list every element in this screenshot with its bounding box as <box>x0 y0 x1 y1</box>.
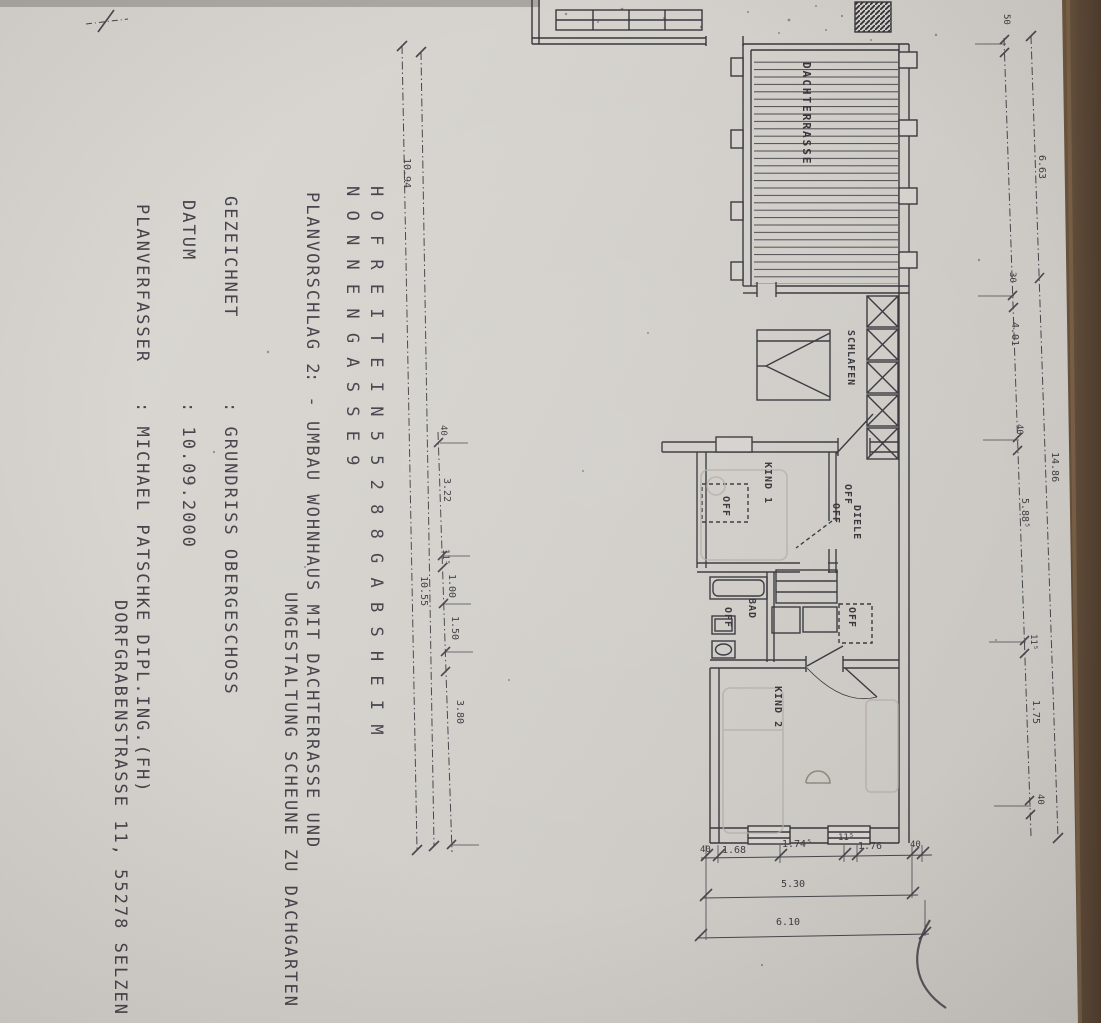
kind2-door-swing-arc <box>807 668 877 699</box>
titleblock-planvorschlag-label: PLANVORSCHLAG 2 <box>302 192 322 376</box>
pen-mark-curve <box>917 920 946 1008</box>
room-label-diele: DIELE <box>851 505 862 540</box>
room-label-dachterrasse: DACHTERRASSE <box>800 62 813 165</box>
titleblock-datum-value: : 10.09.2000 <box>178 402 198 549</box>
titleblock-planverfasser-value1: : MICHAEL PATSCHKE DIPL.ING.(FH) <box>132 402 152 794</box>
dimension-line-bottom-width <box>700 887 919 901</box>
dimension-chain-right <box>975 35 1035 836</box>
titleblock-planvorschlag-value1: : - UMBAU WOHNHAUS MIT DACHTERRASSE UND <box>302 372 322 849</box>
dim-label-left-chain-2: 11⁵ <box>440 549 450 565</box>
dim-label-right-chain-4: 5.88⁵ <box>1019 498 1030 528</box>
dim-label-bottom-chain-2: 1.74⁵ <box>782 839 812 850</box>
bad-walls <box>767 572 774 662</box>
dim-label-right-chain-5: 11⁵ <box>1028 634 1038 650</box>
off-label-diele-upper: OFF <box>842 484 853 505</box>
terrace-schlafen-wall <box>743 282 909 297</box>
pencil-arc-sketch <box>806 771 830 783</box>
dim-label-right-chain-7: 40 <box>1035 794 1045 805</box>
titleblock-planvorschlag-value2: UMGESTALTUNG SCHEUNE ZU DACHGARTEN <box>280 592 300 1008</box>
dim-label-left-chain-0: 40 <box>438 425 448 436</box>
staircase-symbol <box>772 570 837 633</box>
dim-label-left-chain-4: 1.50 <box>449 616 460 640</box>
chimney-hatched <box>855 2 891 32</box>
kind2-door-leaf <box>845 668 877 697</box>
dim-label-right-chain-6: 1.75 <box>1030 700 1041 724</box>
dim-label-left-total: 10.94 <box>401 158 412 188</box>
dim-label-right-chain-0: 50 <box>1001 14 1011 25</box>
room-label-bad: BAD <box>746 598 757 619</box>
dimension-line-bottom-total <box>695 927 931 941</box>
titleblock-gezeichnet-label: GEZEICHNET <box>220 196 240 318</box>
dim-label-left-chain-3: 1.00 <box>446 574 457 598</box>
kind2-walls <box>710 668 899 843</box>
bed-symbol <box>757 330 830 400</box>
dim-label-bottom-chain-3: 11⁵ <box>838 833 854 843</box>
dim-label-right-chain-2: 4.01 <box>1009 322 1020 346</box>
adjoining-structure-walls <box>532 0 743 46</box>
titleblock-gezeichnet-value: : GRUNDRISS OBERGESCHOSS <box>220 402 240 696</box>
off-label-bad: OFF <box>722 607 733 628</box>
dim-label-left-chain-5: 3.80 <box>454 700 465 724</box>
floor-plan-drawing <box>0 0 1101 1023</box>
off-label-diele-lower: OFF <box>846 607 857 628</box>
wardrobe-symbol <box>867 296 898 459</box>
dim-label-bottom-chain-1: 1.68 <box>722 845 746 856</box>
bottom-extension-lines <box>706 845 925 940</box>
edge-dimension-tick <box>86 10 128 32</box>
dim-label-right-chain-3: 40 <box>1014 424 1024 435</box>
diele-door-leaf <box>807 646 843 666</box>
dim-label-left-partial: 10.55 <box>418 576 429 606</box>
bathtub-symbol <box>710 577 767 599</box>
dim-label-bottom-total: 6.10 <box>776 917 800 928</box>
titleblock-project-line1: H O F R E I T E I N 5 5 2 8 8 G A B S H … <box>366 186 386 737</box>
titleblock-planverfasser-label: PLANVERFASSER <box>132 204 152 363</box>
dim-label-bottom-chain-5: 40 <box>910 840 921 850</box>
room-label-schlafen: SCHLAFEN <box>845 330 856 386</box>
kind2-top-wall <box>710 656 899 672</box>
kind1-door-swing-dashed <box>796 521 832 548</box>
dim-label-right-span-top: 6.63 <box>1036 155 1047 179</box>
titleblock-planverfasser-value2: DORFGRABENSTRASSE 11, 55278 SELZEN <box>110 600 130 1016</box>
sink-symbol <box>712 641 735 658</box>
dim-label-bottom-chain-4: 1.76 <box>858 841 882 852</box>
off-label-diele-mid: OFF <box>830 503 841 524</box>
dimension-line-left-partial <box>416 47 439 851</box>
dim-label-left-chain-1: 3.22 <box>441 478 452 502</box>
scanned-floor-plan-photo: H O F R E I T E I N 5 5 2 8 8 G A B S H … <box>0 0 1101 1023</box>
titleblock-datum-label: DATUM <box>178 200 198 261</box>
window-band-symbol <box>556 10 702 30</box>
titleblock-project-line2: N O N N E N G A S S E 9 <box>342 186 362 467</box>
room-label-kind2: KIND 2 <box>772 686 783 728</box>
dim-label-bottom-width: 5.30 <box>781 879 805 890</box>
terrace-decking <box>754 56 898 284</box>
dim-label-right-chain-1: 30 <box>1007 272 1017 283</box>
off-label-kind1: OFF <box>720 496 731 517</box>
dim-label-bottom-chain-0: 40 <box>700 845 711 855</box>
room-label-kind1: KIND 1 <box>762 462 773 504</box>
dim-label-right-total: 14.86 <box>1049 452 1060 482</box>
